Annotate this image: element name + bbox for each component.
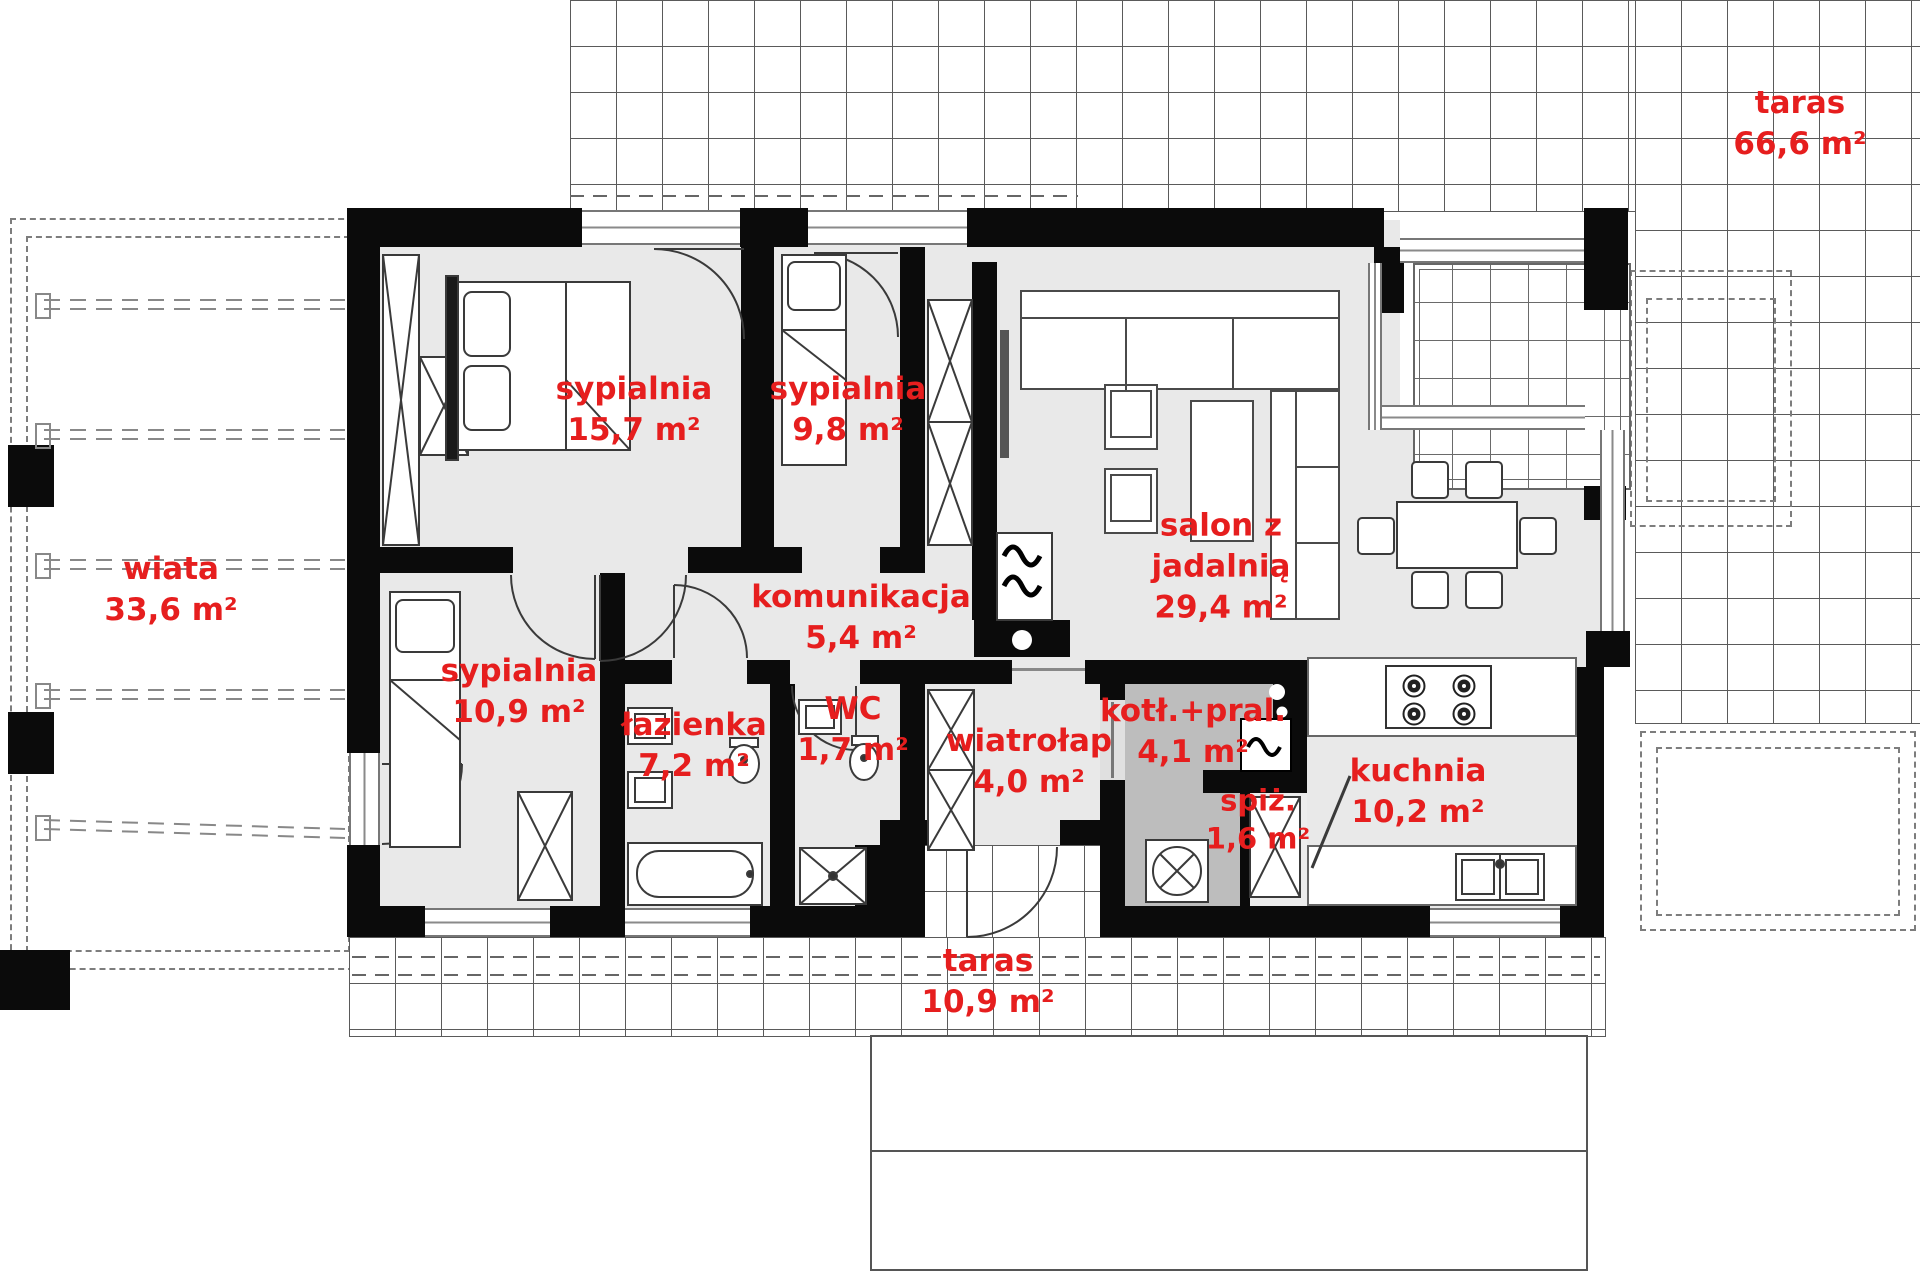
door-entrance <box>967 847 1057 937</box>
room-label-taras-top: taras66,6 m² <box>1733 83 1866 165</box>
door-bathroom <box>674 585 747 658</box>
wardrobe-bedroom3 <box>518 792 572 900</box>
room-label-kotlownia: kotł.+pral.4,1 m² <box>1100 691 1286 773</box>
room-label-sypialnia-2: sypialnia9,8 m² <box>770 369 927 451</box>
floor-plan: taras66,6 m² wiata33,6 m² sypialnia15,7 … <box>0 0 1920 1276</box>
room-label-salon: salon z jadalnią29,4 m² <box>1141 506 1301 629</box>
door-bedroom3 <box>511 575 595 659</box>
kitchen-sink <box>1456 854 1544 900</box>
fireplace <box>997 533 1052 650</box>
room-label-taras-bottom: taras10,9 m² <box>921 941 1054 1023</box>
room-label-spizarnia: spiż.1,6 m² <box>1206 782 1310 859</box>
washing-machine <box>1146 840 1208 902</box>
hob-burners <box>1404 676 1475 725</box>
room-label-komunikacja: komunikacja5,4 m² <box>751 577 971 659</box>
armchair-lines <box>1111 391 1151 521</box>
room-label-sypialnia-3: sypialnia10,9 m² <box>441 651 598 733</box>
bathtub <box>628 843 762 905</box>
shower <box>800 848 866 904</box>
room-label-sypialnia-1: sypialnia15,7 m² <box>556 369 713 451</box>
door-bedroom1 <box>654 249 744 339</box>
pantry-door <box>1312 776 1350 868</box>
room-label-wiatrolap: wiatrołap4,0 m² <box>946 721 1112 803</box>
room-label-wiata: wiata33,6 m² <box>104 549 237 631</box>
room-label-wc: WC1,7 m² <box>797 689 909 771</box>
room-label-kuchnia: kuchnia10,2 m² <box>1350 751 1487 833</box>
wardrobe-hall <box>928 300 972 545</box>
dining-table-set <box>1358 462 1556 608</box>
carport-beam-brackets <box>36 294 50 840</box>
room-label-lazienka: łazienka7,2 m² <box>621 705 767 787</box>
